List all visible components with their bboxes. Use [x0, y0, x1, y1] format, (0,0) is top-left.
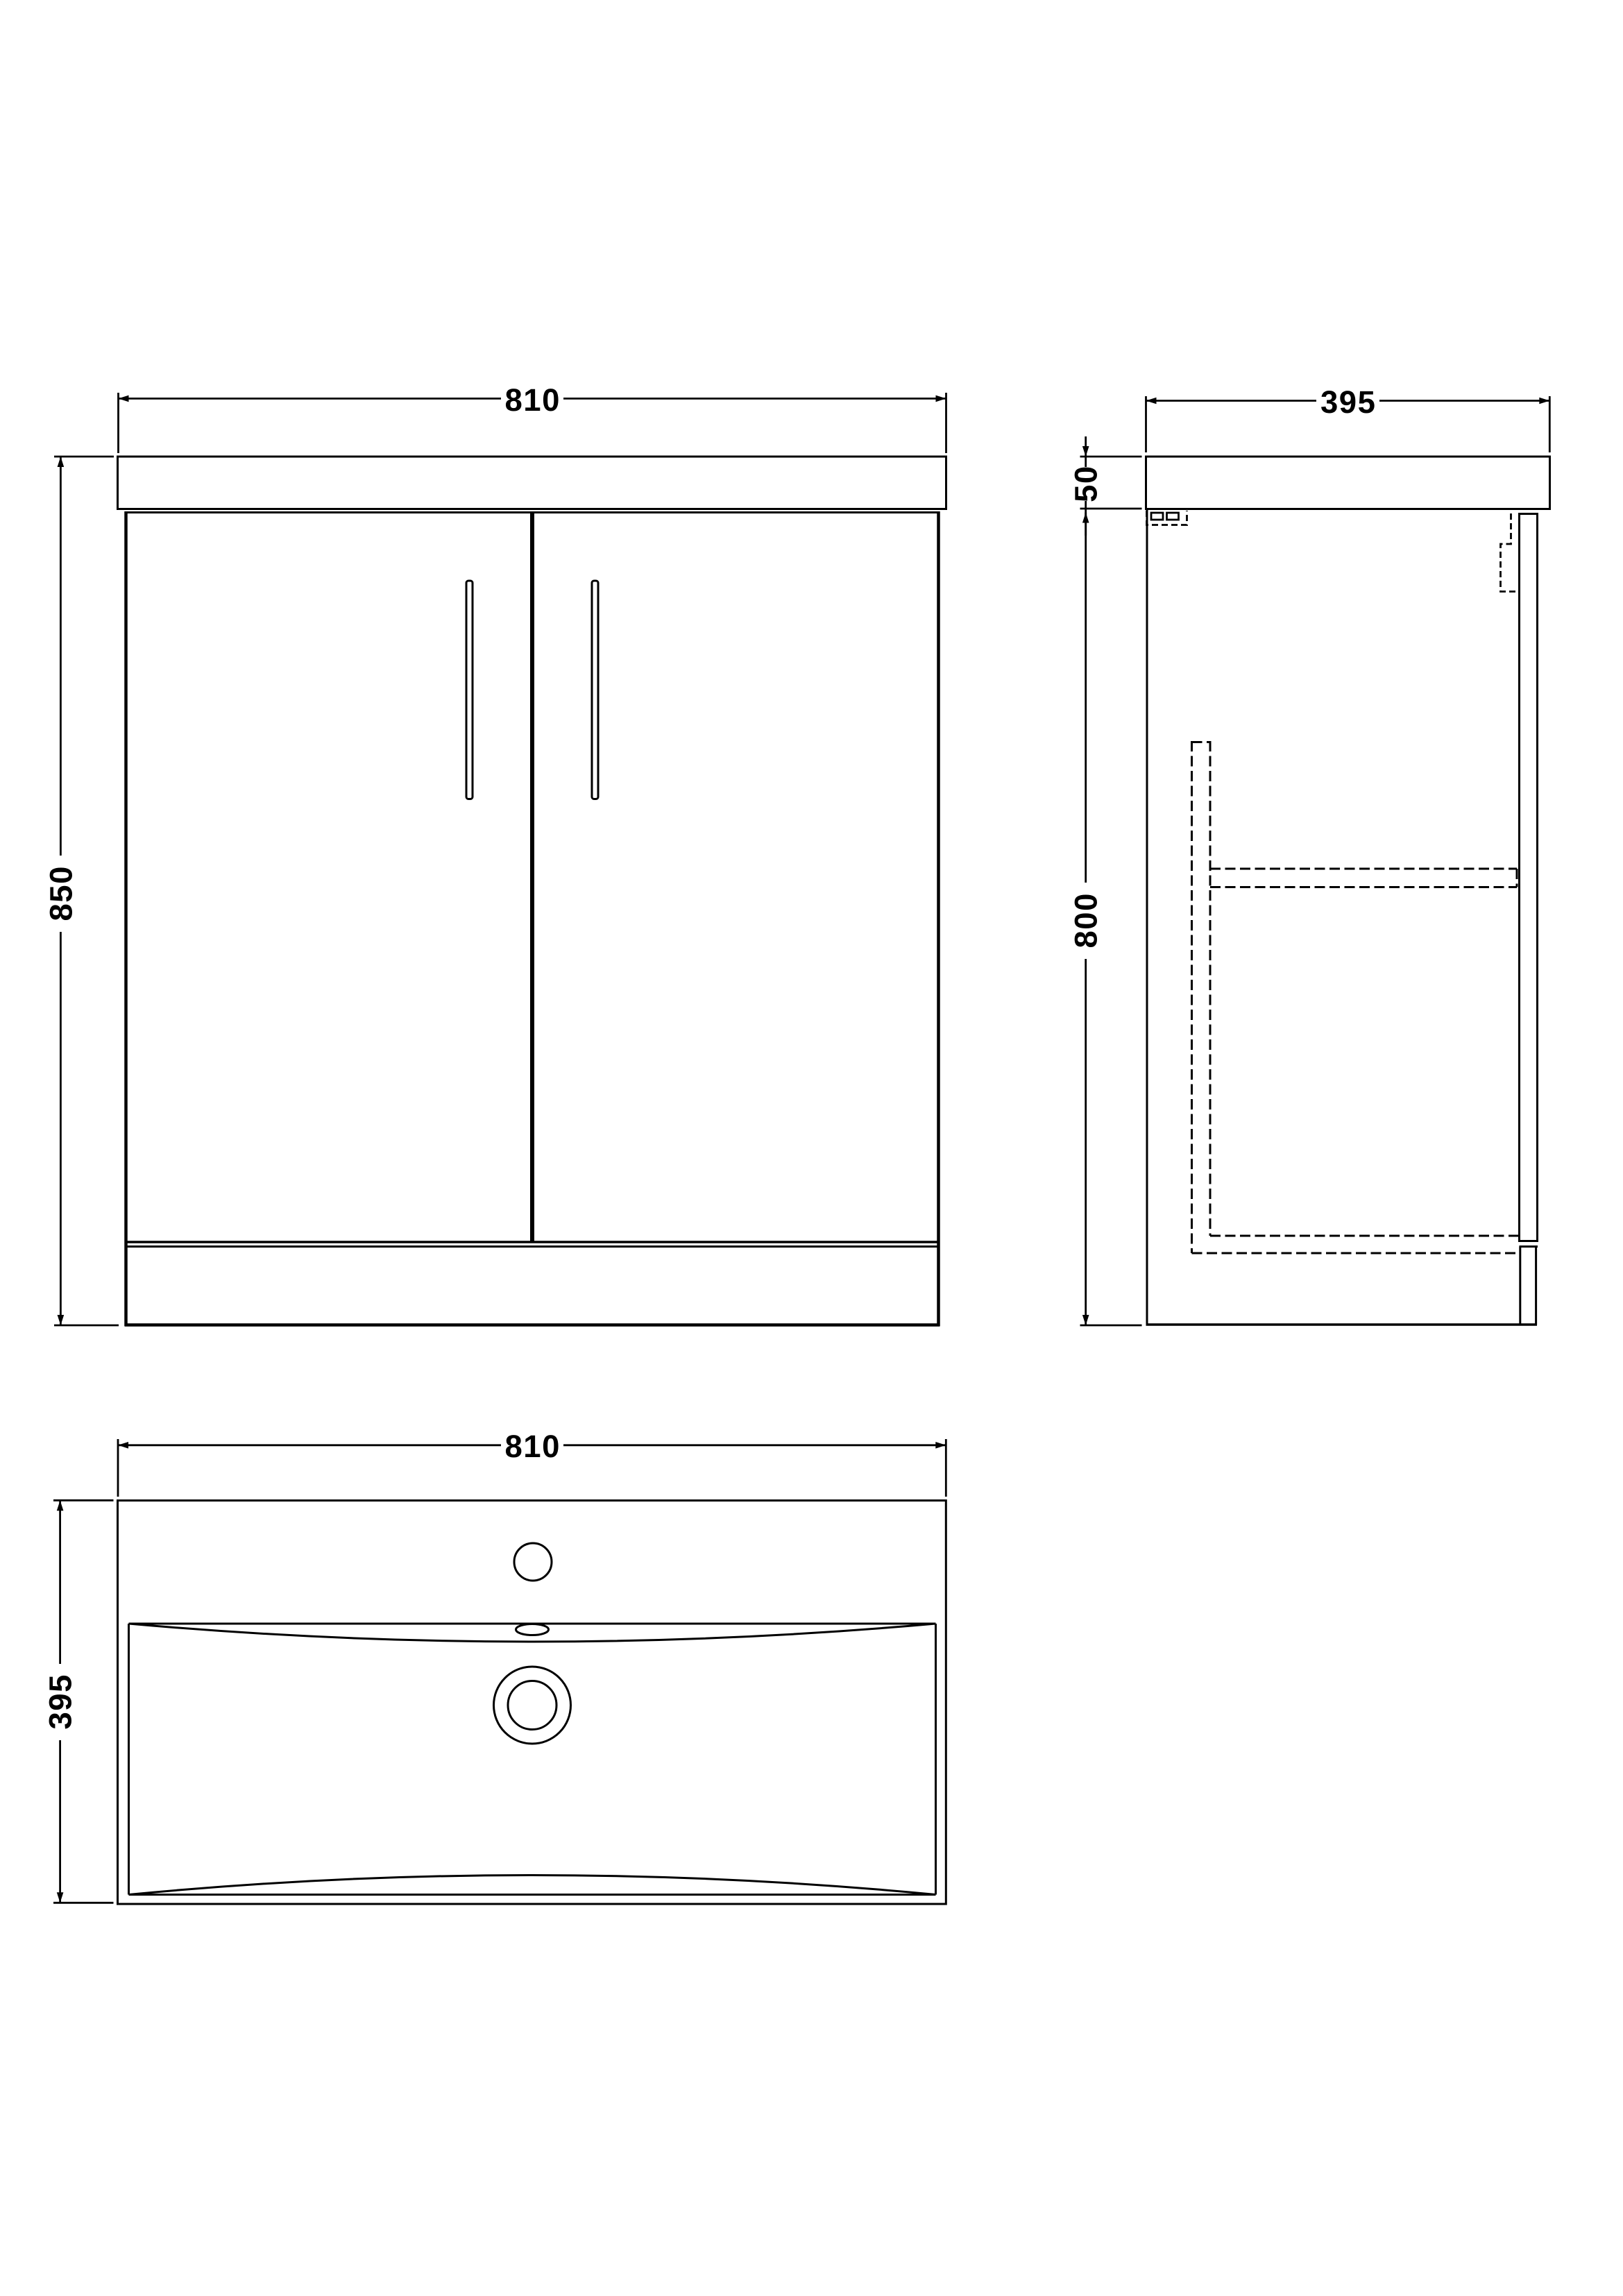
svg-text:50: 50: [1069, 465, 1104, 502]
svg-text:810: 810: [504, 1429, 560, 1464]
svg-text:395: 395: [1320, 384, 1376, 420]
svg-text:395: 395: [43, 1674, 78, 1729]
svg-text:800: 800: [1069, 892, 1104, 948]
svg-text:810: 810: [504, 382, 560, 418]
svg-text:850: 850: [43, 865, 78, 921]
